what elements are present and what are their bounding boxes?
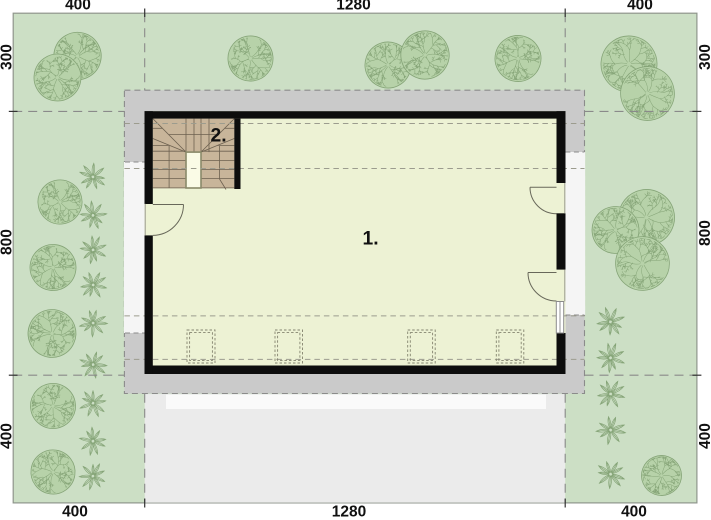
svg-text:800: 800 bbox=[0, 229, 16, 255]
svg-text:300: 300 bbox=[697, 44, 711, 70]
svg-text:400: 400 bbox=[0, 423, 16, 449]
svg-text:2.: 2. bbox=[211, 126, 227, 147]
svg-text:800: 800 bbox=[697, 220, 711, 246]
svg-text:400: 400 bbox=[62, 504, 88, 520]
svg-text:400: 400 bbox=[627, 0, 653, 14]
svg-text:400: 400 bbox=[65, 0, 91, 14]
svg-text:400: 400 bbox=[697, 423, 711, 449]
svg-text:1280: 1280 bbox=[332, 504, 366, 520]
svg-text:1.: 1. bbox=[363, 229, 379, 250]
svg-text:400: 400 bbox=[621, 504, 647, 520]
svg-text:300: 300 bbox=[0, 44, 16, 70]
svg-text:1280: 1280 bbox=[336, 0, 370, 14]
